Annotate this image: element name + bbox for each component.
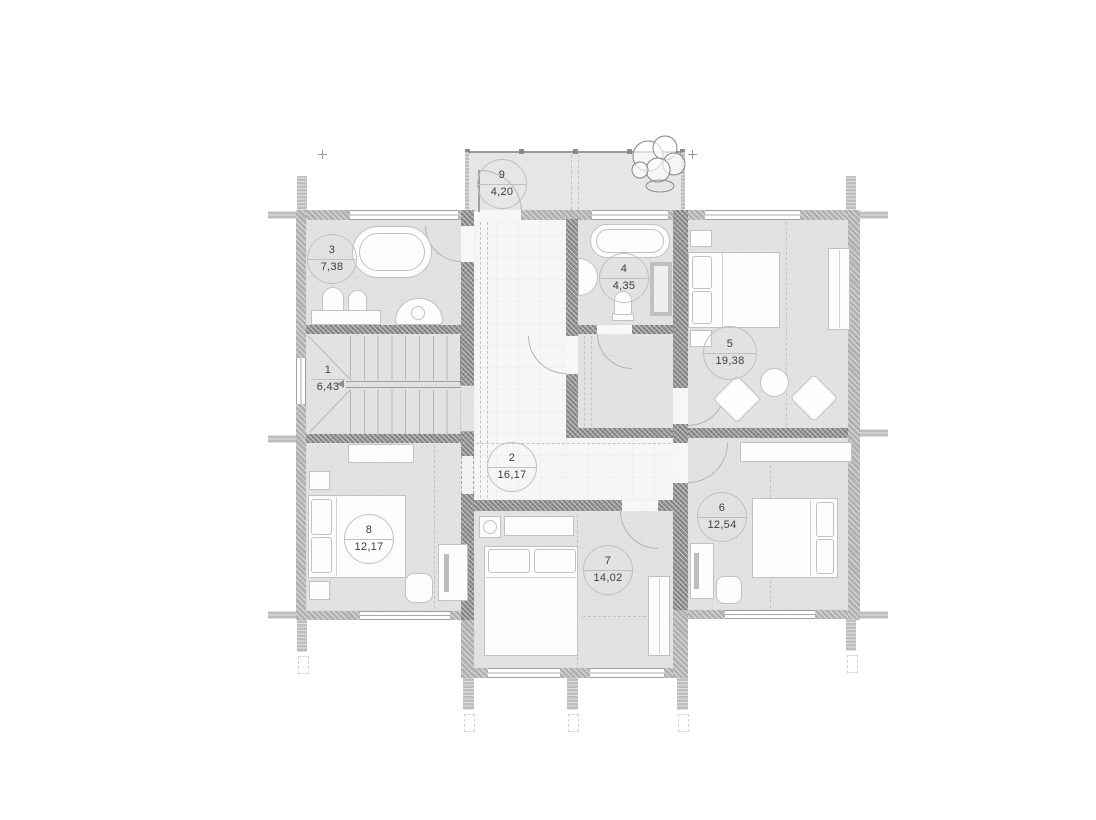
label-divider — [311, 379, 345, 380]
log-end-tab — [860, 611, 888, 619]
wall-segment — [673, 483, 688, 610]
wall-segment — [673, 210, 688, 388]
door-opening — [461, 226, 474, 262]
wall-segment — [632, 325, 673, 334]
door-opening — [597, 325, 632, 334]
bathtub-basin — [596, 229, 664, 253]
window — [296, 358, 306, 404]
room-label-3: 3 7,38 — [307, 234, 357, 284]
log-end-tab — [567, 678, 578, 710]
wall-segment — [296, 210, 306, 358]
log-end-tab — [268, 435, 296, 443]
log-end-tab — [297, 176, 307, 210]
room-area: 19,38 — [715, 355, 744, 369]
axis-dashed-line — [584, 336, 585, 426]
foundation-ghost-mark — [568, 714, 579, 732]
threshold-line — [461, 385, 474, 386]
bed-blanket-line — [336, 497, 337, 576]
window — [488, 668, 560, 678]
room-number: 5 — [727, 338, 733, 352]
foundation-ghost-mark — [847, 655, 858, 673]
label-divider — [488, 467, 536, 468]
bathtub-basin — [359, 233, 425, 271]
pillow — [311, 499, 332, 535]
room-label-5: 5 19,38 — [703, 326, 757, 380]
axis-dashed-line — [786, 222, 787, 426]
room-label-9: 9 4,20 — [477, 159, 527, 209]
wall-segment — [521, 210, 592, 220]
wall-segment — [461, 494, 474, 511]
desk-chair — [405, 573, 433, 603]
room-area: 12,54 — [707, 519, 736, 533]
wall-segment — [461, 262, 474, 385]
coffee-table — [760, 368, 789, 397]
wardrobe-door-line — [659, 578, 660, 654]
window — [590, 668, 664, 678]
balcony-side-rail-left — [465, 152, 469, 210]
wall-segment — [566, 374, 578, 428]
foundation-ghost-mark — [464, 714, 475, 732]
log-end-tab — [268, 611, 296, 619]
door-opening — [673, 388, 688, 424]
door-opening — [622, 500, 658, 511]
bed-blanket-line — [810, 500, 811, 576]
window — [350, 210, 458, 220]
door-opening — [673, 443, 688, 483]
bed-blanket-line — [722, 253, 723, 327]
log-end-tab — [846, 176, 856, 210]
wall-segment — [461, 210, 474, 226]
pillow — [692, 291, 712, 324]
axis-dashed-line — [480, 222, 481, 498]
nightstand — [690, 230, 712, 247]
pillow — [311, 537, 332, 573]
dresser — [740, 442, 852, 462]
label-divider — [308, 259, 356, 260]
desk-chair — [716, 576, 742, 604]
railing-post — [573, 149, 578, 154]
pillow — [692, 256, 712, 289]
sink-basin — [411, 306, 425, 320]
stair-treads-upper — [350, 336, 461, 380]
plant-icon — [618, 128, 696, 202]
room-number: 2 — [509, 452, 515, 466]
label-divider — [704, 353, 756, 354]
label-divider — [584, 570, 632, 571]
room-label-7: 7 14,02 — [583, 545, 633, 595]
room-number: 6 — [719, 502, 725, 516]
wall-segment — [306, 325, 474, 334]
room-area: 16,17 — [497, 469, 526, 483]
log-end-tab — [677, 678, 688, 710]
window — [360, 611, 450, 620]
dresser — [504, 516, 574, 536]
monitor — [694, 553, 699, 589]
nightstand — [309, 471, 330, 490]
log-end-tab — [297, 620, 307, 652]
dresser — [348, 444, 414, 463]
log-end-tab — [860, 429, 888, 437]
pillow — [816, 502, 834, 537]
stairs-hall-opening-floor — [461, 385, 474, 432]
hall-floor-east — [566, 438, 673, 500]
pillow — [816, 539, 834, 574]
wall-segment — [461, 620, 474, 678]
window — [592, 210, 668, 220]
wall-segment — [566, 219, 578, 336]
room-number: 4 — [621, 263, 627, 277]
room-number: 3 — [329, 244, 335, 258]
foundation-ghost-mark — [678, 714, 689, 732]
log-end-tab — [268, 211, 296, 219]
wall-segment — [296, 404, 306, 620]
room-label-1: 1 6,43 — [308, 364, 348, 395]
pillow — [534, 549, 576, 573]
desk — [438, 544, 468, 601]
axis-dashed-line — [578, 155, 579, 210]
room-area: 12,17 — [354, 541, 383, 555]
survey-cross-mark — [318, 150, 327, 159]
label-divider — [478, 184, 526, 185]
label-divider — [345, 539, 393, 540]
foundation-ghost-mark — [298, 656, 309, 674]
room-area: 6,43 — [317, 381, 340, 395]
wall-segment — [462, 500, 622, 511]
wall-segment — [673, 424, 688, 443]
room-area: 4,20 — [491, 186, 514, 200]
axis-dashed-line — [571, 155, 572, 210]
stair-treads-lower — [350, 390, 461, 434]
railing-post — [519, 149, 524, 154]
room-number: 8 — [366, 524, 372, 538]
wall-segment — [560, 668, 590, 678]
bed-blanket-line — [486, 577, 576, 578]
room-area: 14,02 — [593, 572, 622, 586]
room-number: 7 — [605, 555, 611, 569]
wall-segment — [673, 610, 688, 678]
room-label-6: 6 12,54 — [697, 492, 747, 542]
room-label-8: 8 12,17 — [344, 514, 394, 564]
label-divider — [600, 278, 648, 279]
shower-unit-inner — [654, 266, 668, 312]
wall-segment — [296, 434, 474, 443]
pillow — [488, 549, 530, 573]
nightstand — [309, 581, 330, 600]
room-number: 9 — [499, 169, 505, 183]
room-number: 1 — [325, 364, 331, 378]
door-opening — [566, 336, 578, 374]
threshold-line — [461, 431, 474, 432]
bathroom-shelf — [311, 310, 381, 325]
log-end-tab — [846, 619, 856, 651]
wall-segment — [578, 325, 597, 334]
wardrobe-door-line — [839, 250, 840, 328]
door-opening-dashed — [461, 456, 474, 494]
room-label-2: 2 16,17 — [487, 442, 537, 492]
window — [725, 610, 815, 619]
log-end-tab — [463, 678, 474, 710]
axis-dashed-line — [434, 445, 435, 609]
room-label-4: 4 4,35 — [599, 253, 649, 303]
axis-dashed-line — [591, 336, 592, 426]
room-area: 4,35 — [613, 280, 636, 294]
window — [705, 210, 800, 220]
wall-segment — [566, 428, 860, 438]
log-end-tab — [860, 211, 888, 219]
floor-plan: 1 6,43 2 16,17 3 7,38 4 4,35 5 19,38 6 1… — [0, 0, 1096, 820]
monitor — [444, 554, 449, 592]
stair-center-rail — [346, 381, 461, 388]
label-divider — [698, 517, 746, 518]
wall-segment — [461, 432, 474, 456]
room-area: 7,38 — [321, 261, 344, 275]
washer-drum — [483, 520, 497, 534]
